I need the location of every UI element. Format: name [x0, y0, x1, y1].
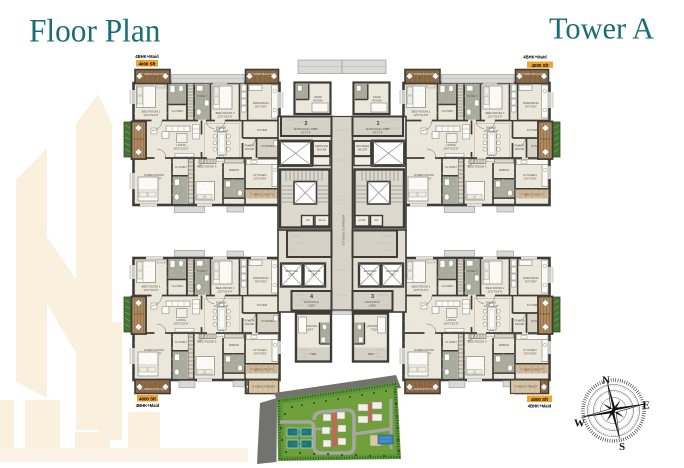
svg-text:LOBBY: LOBBY [368, 305, 377, 308]
svg-text:5'0" WIDE CORRIDOR: 5'0" WIDE CORRIDOR [342, 214, 346, 246]
svg-text:7' WIDE STREET: 7' WIDE STREET [252, 385, 276, 389]
svg-text:N: N [602, 375, 610, 387]
svg-text:9'0"X7'6": 9'0"X7'6" [301, 132, 311, 135]
svg-text:9'0"X7'6": 9'0"X7'6" [373, 132, 383, 135]
svg-text:E: E [642, 400, 649, 412]
svg-text:4BHK+Maid: 4BHK+Maid [135, 54, 159, 59]
svg-text:4BHK+Maid: 4BHK+Maid [136, 403, 160, 408]
svg-text:4BHK+Maid: 4BHK+Maid [523, 55, 547, 60]
svg-text:1: 1 [376, 121, 379, 127]
svg-text:ENTRANCE: ENTRANCE [304, 300, 319, 304]
svg-text:2: 2 [304, 121, 307, 127]
svg-text:4000 Sft: 4000 Sft [532, 63, 549, 68]
svg-text:LOBBY: LOBBY [307, 305, 316, 308]
svg-text:S: S [619, 441, 625, 453]
svg-text:4000 Sft: 4000 Sft [139, 61, 156, 66]
svg-text:4000 Sft: 4000 Sft [531, 397, 548, 402]
svg-text:W: W [574, 418, 585, 430]
svg-text:ENTRANCE: ENTRANCE [365, 300, 380, 304]
svg-text:4BHK+Maid: 4BHK+Maid [528, 403, 552, 408]
svg-text:4000 Sft: 4000 Sft [139, 396, 156, 401]
svg-text:ENTRANCE LOBBY: ENTRANCE LOBBY [294, 127, 319, 131]
svg-text:Floor Plan: Floor Plan [29, 12, 160, 49]
svg-text:Tower A: Tower A [549, 11, 654, 45]
svg-text:ENTRANCE LOBBY: ENTRANCE LOBBY [366, 127, 391, 131]
svg-text:3: 3 [371, 294, 374, 300]
